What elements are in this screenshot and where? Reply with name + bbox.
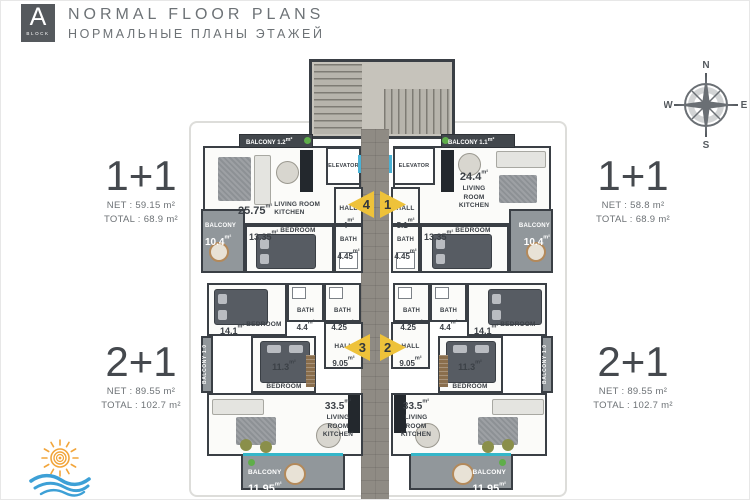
- unit3-number-arrow: 3: [344, 334, 370, 361]
- dining-table-icon: [276, 161, 299, 184]
- unit1-number-arrow: 1: [380, 191, 406, 218]
- arrow-left-icon: [348, 191, 374, 218]
- room-area: 4.4: [297, 323, 308, 332]
- sqm-unit: m²: [410, 249, 417, 255]
- unit-number: 3: [359, 340, 366, 355]
- sqm-unit: m²: [347, 320, 354, 326]
- room-name: BATH: [297, 308, 314, 314]
- bed-icon: [214, 289, 268, 325]
- bed-icon: [488, 289, 542, 325]
- elevator-right: ELEVATOR: [393, 147, 435, 185]
- room-name: BEDROOM: [500, 321, 535, 328]
- sqm-unit: m²: [238, 324, 245, 330]
- staircase-right: [384, 89, 450, 134]
- unit2-number-arrow: 2: [380, 334, 406, 361]
- room-area: 10.4: [205, 237, 224, 248]
- room-area: 11.95: [472, 483, 499, 495]
- room-name: BATH: [340, 237, 357, 243]
- room-name: BEDROOM: [246, 321, 281, 328]
- compass-rose-icon: N S W E: [664, 57, 748, 154]
- room-area: 24.4: [460, 171, 481, 183]
- room-area: 14.1: [220, 326, 238, 336]
- room-name: BEDROOM: [266, 383, 301, 390]
- sqm-unit: m²: [422, 399, 429, 405]
- shower-icon: [292, 287, 306, 299]
- rug-icon: [218, 157, 251, 201]
- kitchen-counter-icon: [300, 150, 313, 192]
- room-name: BATH: [440, 308, 457, 314]
- unit-number: 2: [384, 340, 391, 355]
- compass-north-label: N: [702, 60, 709, 71]
- elevator-label: ELEVATOR: [399, 163, 430, 169]
- plant-pot-icon: [240, 439, 252, 451]
- compass-south-label: S: [703, 140, 710, 149]
- sqm-unit: m²: [353, 249, 360, 255]
- sqm-unit: m²: [347, 218, 354, 224]
- floor-plan-page: A BLOCK NORMAL FLOOR PLANS НОРМАЛЬНЫЕ ПЛ…: [0, 0, 750, 500]
- room-area: 10.4: [524, 237, 543, 248]
- unit2-bath-inner-label: BATH 4.4m²: [430, 299, 467, 336]
- total-area: TOTAL : 102.7 m²: [548, 400, 718, 411]
- room-area: 1.1: [479, 140, 487, 146]
- page-subtitle: НОРМАЛЬНЫЕ ПЛАНЫ ЭТАЖЕЙ: [68, 27, 325, 41]
- unit1-side-balcony-label: BALCONY 10.4m²: [512, 214, 550, 251]
- unit1-bedroom-label: 13.35m² BEDROOM: [424, 227, 491, 245]
- room-area: 13.35: [424, 232, 447, 242]
- floor-plan: ELEVATOR ELEVATOR BALCONY 1.2m² 25.75m² …: [196, 59, 558, 491]
- unit2-side-balcony-label: BALCONY 1.0: [542, 339, 548, 389]
- room-name: BATH: [397, 237, 414, 243]
- room-area: 4.25: [400, 323, 416, 332]
- staircase-left: [314, 64, 362, 134]
- room-area: 14.1: [474, 326, 492, 336]
- sqm-unit: m²: [408, 218, 415, 224]
- room-name: BALCONY: [205, 223, 236, 229]
- balcony-table-icon: [284, 463, 306, 485]
- room-name: LIVING ROOM KITCHEN: [399, 414, 433, 438]
- page-title: NORMAL FLOOR PLANS: [68, 6, 324, 24]
- corridor: [361, 129, 389, 500]
- net-area: NET : 89.55 m²: [548, 386, 718, 397]
- room-area: 25.75: [238, 205, 266, 217]
- room-name: LIVING ROOM KITCHEN: [321, 414, 355, 438]
- room-area: 1.2: [277, 140, 285, 146]
- unit2-bedroom-large-label: 14.1m² BEDROOM: [474, 321, 536, 339]
- unit4-living-label: 25.75m² LIVING ROOM KITCHEN: [238, 201, 320, 219]
- unit2-bedroom-small-label: 11.3m² BEDROOM: [442, 357, 498, 394]
- room-area: 4.45: [394, 252, 410, 261]
- spec-2plus1-right: 2+1 NET : 89.55 m² TOTAL : 102.7 m²: [548, 341, 718, 411]
- block-word: BLOCK: [26, 31, 49, 36]
- room-name: BALCONY: [448, 140, 478, 146]
- room-area: 11.3: [458, 362, 475, 372]
- sqm-unit: m²: [481, 170, 488, 176]
- unit3-bedroom-large-label: 14.1m² BEDROOM: [220, 321, 282, 339]
- room-area: 11.95: [248, 483, 275, 495]
- room-area: 11.3: [272, 362, 289, 372]
- unit3-bedroom-small-label: 11.3m² BEDROOM: [256, 357, 312, 394]
- unit1-top-balcony-label: BALCONY 1.1m²: [448, 137, 494, 147]
- room-name: BATH: [403, 308, 420, 314]
- plant-pot-icon: [482, 441, 494, 453]
- sqm-unit: m²: [266, 204, 273, 210]
- unit4-side-balcony-label: BALCONY 10.4m²: [205, 214, 236, 251]
- block-letter: A: [30, 4, 47, 31]
- balcony-glass-edge: [411, 453, 511, 456]
- room-area: 4.25: [331, 323, 347, 332]
- spec-1plus1-right: 1+1 NET : 58.8 m² TOTAL : 68.9 m²: [548, 155, 718, 225]
- room-name: BALCONY: [246, 140, 276, 146]
- sqm-unit: m²: [543, 235, 550, 241]
- unit3-living-label: 33.5m² LIVING ROOM KITCHEN: [315, 396, 361, 439]
- sun-waves-logo-icon: [27, 437, 93, 500]
- room-name: BALCONY: [472, 469, 506, 476]
- sqm-unit: m²: [289, 360, 296, 366]
- sqm-unit: m²: [451, 320, 458, 326]
- compass-east-label: E: [741, 100, 748, 111]
- plant-icon: [304, 137, 311, 144]
- sofa-icon: [212, 399, 264, 415]
- unit3-side-balcony-label: BALCONY 1.0: [202, 339, 208, 389]
- shower-icon: [329, 287, 343, 299]
- sqm-unit: m²: [308, 320, 315, 326]
- sqm-unit: m²: [344, 399, 351, 405]
- block-logo: A BLOCK: [21, 4, 55, 42]
- shower-icon: [398, 287, 412, 299]
- unit-type: 2+1: [548, 341, 718, 383]
- unit1-bath-label: BATH 4.45m²: [391, 228, 420, 265]
- room-name: BALCONY: [519, 223, 550, 229]
- room-area: 33.5: [325, 401, 344, 412]
- sofa-icon: [496, 151, 546, 168]
- room-name: BALCONY: [248, 469, 282, 476]
- elevator-label: ELEVATOR: [328, 163, 359, 169]
- room-name: BEDROOM: [280, 227, 315, 234]
- unit-number: 4: [363, 197, 370, 212]
- sqm-unit: m²: [416, 320, 423, 326]
- plant-pot-icon: [260, 441, 272, 453]
- sofa-icon: [492, 399, 544, 415]
- room-name: BEDROOM: [455, 227, 490, 234]
- unit4-top-balcony-label: BALCONY 1.2m²: [246, 137, 292, 147]
- room-name: LIVING ROOM KITCHEN: [452, 185, 496, 209]
- arrow-left-icon: [344, 334, 370, 361]
- sqm-unit: m²: [272, 230, 279, 236]
- sqm-unit: m²: [224, 235, 231, 241]
- unit4-bedroom-label: 13.35m² BEDROOM: [249, 227, 316, 245]
- room-area: 33.5: [403, 401, 422, 412]
- plant-pot-icon: [502, 439, 514, 451]
- unit3-bottom-balcony-label: BALCONY 11.95m²: [248, 461, 282, 498]
- net-area: NET : 58.8 m²: [548, 200, 718, 211]
- room-area: 13.35: [249, 232, 272, 242]
- unit4-number-arrow: 4: [348, 191, 374, 218]
- unit2-bottom-balcony-label: BALCONY 11.95m²: [436, 461, 506, 498]
- sqm-unit: m²: [447, 230, 454, 236]
- sqm-unit: m²: [475, 360, 482, 366]
- room-area: 4.45: [337, 252, 353, 261]
- sqm-unit: m²: [275, 482, 282, 488]
- elevator-door-left: [358, 155, 361, 173]
- unit2-living-label: 33.5m² LIVING ROOM KITCHEN: [393, 396, 439, 439]
- unit1-living-label: 24.4m² LIVING ROOM KITCHEN: [444, 167, 504, 210]
- sqm-unit: m²: [286, 137, 293, 143]
- unit-type: 1+1: [548, 155, 718, 197]
- sqm-unit: m²: [492, 324, 499, 330]
- total-area: TOTAL : 68.9 m²: [548, 214, 718, 225]
- elevator-door-right: [389, 155, 392, 173]
- room-name: BEDROOM: [452, 383, 487, 390]
- unit2-bath-outer-label: BATH 4.25m²: [393, 299, 430, 336]
- elevator-left: ELEVATOR: [326, 147, 361, 185]
- room-name: LIVING ROOM KITCHEN: [274, 201, 320, 217]
- room-name: BATH: [334, 308, 351, 314]
- sqm-unit: m²: [488, 137, 495, 143]
- unit3-bath-inner-label: BATH 4.4m²: [287, 299, 324, 336]
- compass-west-label: W: [664, 100, 673, 111]
- shower-icon: [435, 287, 449, 299]
- rug-icon: [499, 175, 537, 203]
- unit-number: 1: [384, 197, 391, 212]
- sqm-unit: m²: [415, 356, 422, 362]
- sqm-unit: m²: [499, 482, 506, 488]
- sofa-icon: [254, 155, 271, 205]
- balcony-glass-edge: [243, 453, 343, 456]
- unit4-bath-label: BATH 4.45m²: [334, 228, 363, 265]
- room-area: 4.4: [440, 323, 451, 332]
- unit3-bath-outer-label: BATH 4.25m²: [324, 299, 361, 336]
